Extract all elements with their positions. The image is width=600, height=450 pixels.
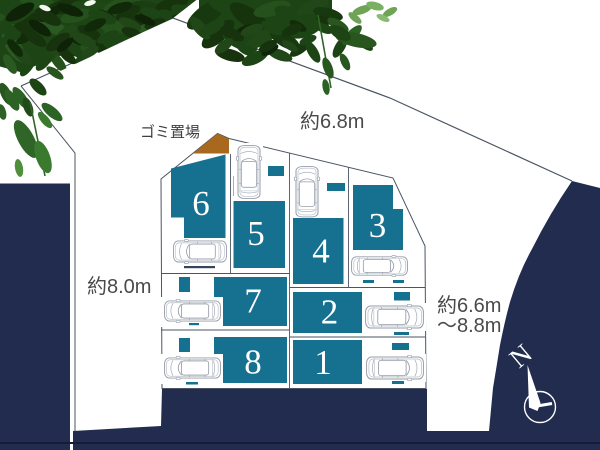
svg-text:4: 4 [312, 232, 330, 271]
svg-text:約6.6m: 約6.6m [437, 294, 501, 317]
svg-text:〜8.8m: 〜8.8m [437, 315, 501, 337]
svg-text:ゴミ置場: ゴミ置場 [140, 123, 200, 141]
svg-text:約8.0m: 約8.0m [87, 275, 151, 298]
svg-text:5: 5 [247, 214, 265, 253]
svg-text:8: 8 [244, 343, 262, 382]
svg-text:1: 1 [314, 343, 332, 382]
svg-text:3: 3 [369, 206, 387, 245]
svg-text:6: 6 [192, 184, 210, 223]
svg-text:約6.8m: 約6.8m [300, 110, 364, 133]
svg-text:2: 2 [321, 293, 339, 332]
svg-text:7: 7 [244, 282, 262, 321]
